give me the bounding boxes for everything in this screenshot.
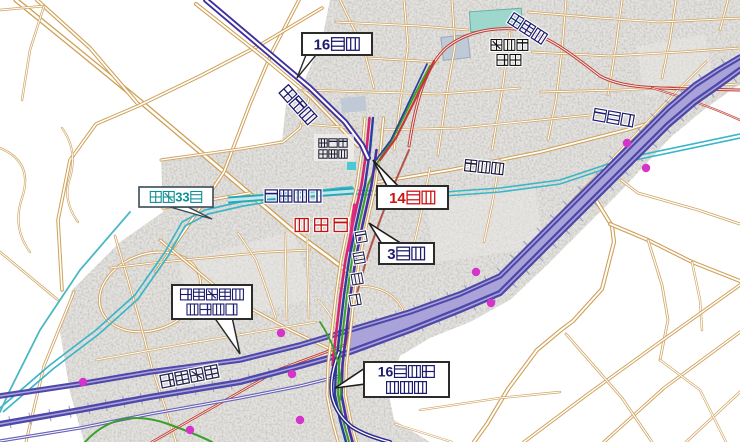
svg-text:3: 3: [387, 246, 395, 263]
svg-text:33: 33: [175, 190, 189, 205]
svg-text:16: 16: [314, 36, 331, 53]
svg-text:14: 14: [389, 190, 406, 207]
svg-text:16: 16: [378, 364, 394, 380]
